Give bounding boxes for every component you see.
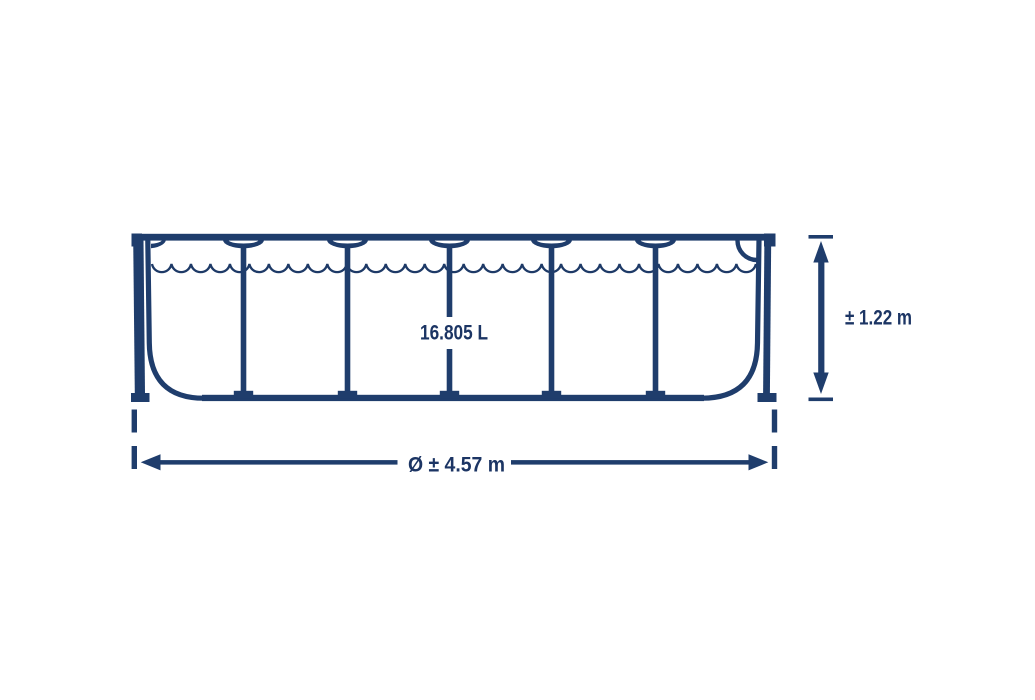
- svg-text:Ø ± 4.57 m: Ø ± 4.57 m: [408, 453, 505, 477]
- svg-text:16.805 L: 16.805 L: [420, 321, 488, 345]
- svg-text:± 1.22 m: ± 1.22 m: [845, 306, 912, 330]
